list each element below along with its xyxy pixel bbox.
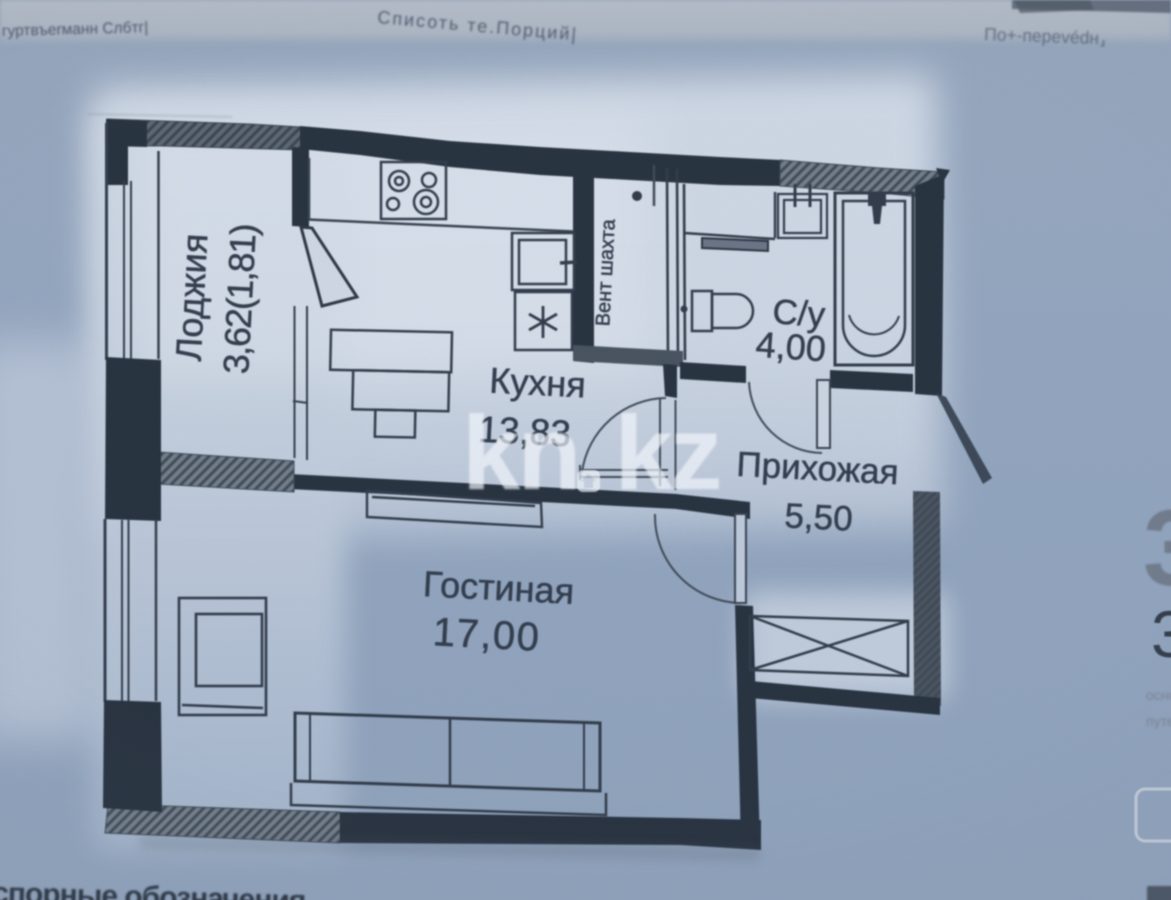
svg-text:осно: осно [1146, 687, 1171, 703]
svg-text:17,00: 17,00 [432, 610, 542, 660]
svg-text:Списоть те.Порций|: Списоть те.Порций| [377, 7, 579, 44]
svg-text:3: 3 [1151, 597, 1171, 671]
svg-text:3: 3 [1143, 487, 1171, 608]
svg-text:5,50: 5,50 [784, 496, 854, 539]
svg-text:путе: путе [1146, 713, 1171, 729]
svg-text:спорные обозначения: спорные обозначения [0, 877, 306, 900]
svg-text:Вент шахта: Вент шахта [592, 218, 620, 327]
svg-text:4,00: 4,00 [754, 324, 827, 370]
svg-text:Лоджия: Лоджия [168, 233, 216, 363]
svg-text:гуртвъerманн Слбтг|: гуртвъerманн Слбтг| [2, 19, 149, 40]
svg-text:Гостиная: Гостиная [422, 563, 575, 612]
svg-text:По+-переvédн⸥: По+-переvédн⸥ [984, 24, 1106, 48]
svg-text:3,62(1,81): 3,62(1,81) [215, 224, 264, 375]
